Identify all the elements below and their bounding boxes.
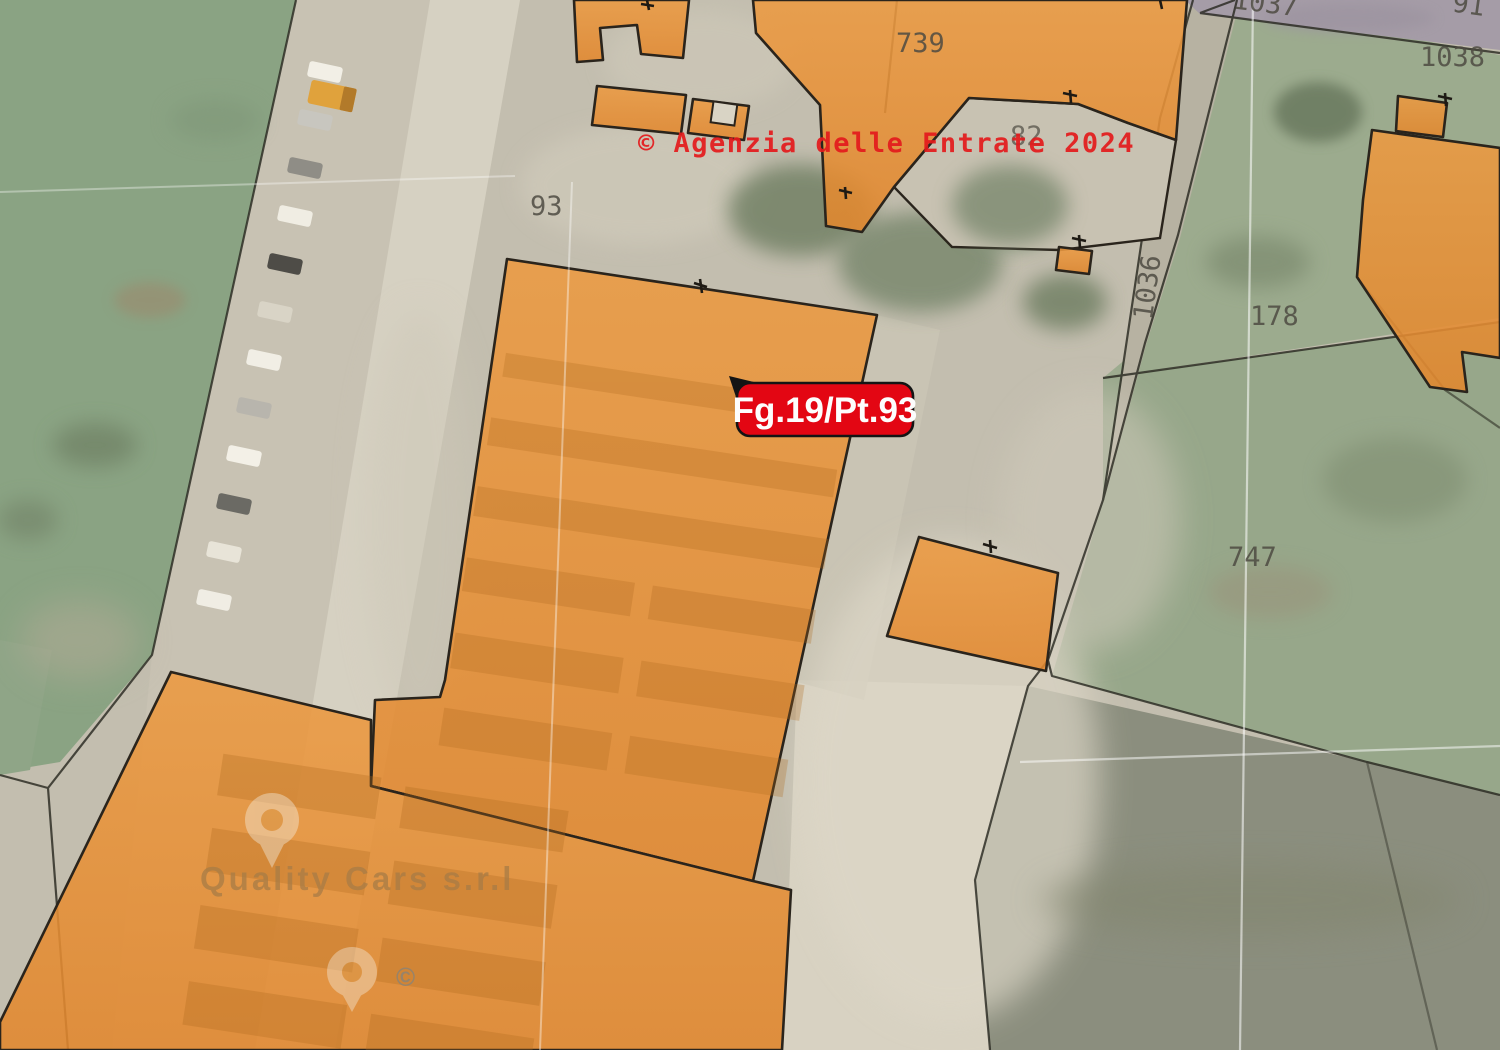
parcel-number-1038: 1038: [1420, 42, 1485, 73]
selection-label[interactable]: Fg.19/Pt.93: [729, 376, 917, 436]
selection-label-text: Fg.19/Pt.93: [733, 391, 918, 430]
parcel-number-739: 739: [896, 28, 945, 59]
agency-watermark: © Agenzia delle Entrate 2024: [638, 128, 1135, 159]
building-1038-annex[interactable]: [1396, 96, 1447, 137]
cadastral-map-viewer: © Quality Cars s.r.l 93 739 82 1036 178 …: [0, 0, 1500, 1050]
building-top-c-notch: [711, 101, 738, 125]
parcel-number-178: 178: [1250, 301, 1299, 332]
map-canvas[interactable]: © Quality Cars s.r.l 93 739 82 1036 178 …: [0, 0, 1500, 1050]
building-top-b[interactable]: [592, 86, 686, 134]
courtyard-tree: [952, 165, 1068, 245]
business-label: Quality Cars s.r.l: [200, 860, 514, 897]
parcel-number-747: 747: [1228, 542, 1277, 573]
parcel-number-93: 93: [530, 191, 563, 222]
ground-copyright-glyph: ©: [396, 962, 415, 992]
building-shed-82[interactable]: [1056, 247, 1092, 274]
